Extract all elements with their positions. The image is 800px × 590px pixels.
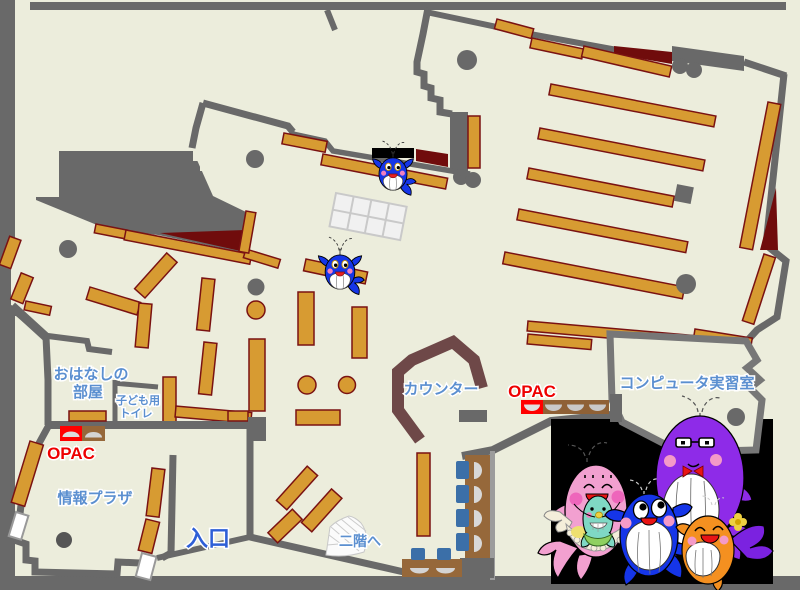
svg-text:トイレ: トイレ: [120, 407, 153, 420]
svg-text:子ども用: 子ども用: [116, 394, 160, 407]
svg-text:OPAC: OPAC: [47, 444, 95, 463]
svg-text:OPAC: OPAC: [508, 382, 556, 401]
svg-text:部屋: 部屋: [73, 383, 103, 401]
svg-text:二階へ: 二階へ: [339, 533, 381, 549]
svg-text:入口: 入口: [186, 526, 230, 551]
svg-text:コンピュータ実習室: コンピュータ実習室: [619, 374, 754, 392]
svg-text:情報プラザ: 情報プラザ: [57, 489, 132, 507]
svg-text:カウンター: カウンター: [403, 381, 478, 398]
svg-text:おはなしの: おはなしの: [53, 366, 128, 383]
